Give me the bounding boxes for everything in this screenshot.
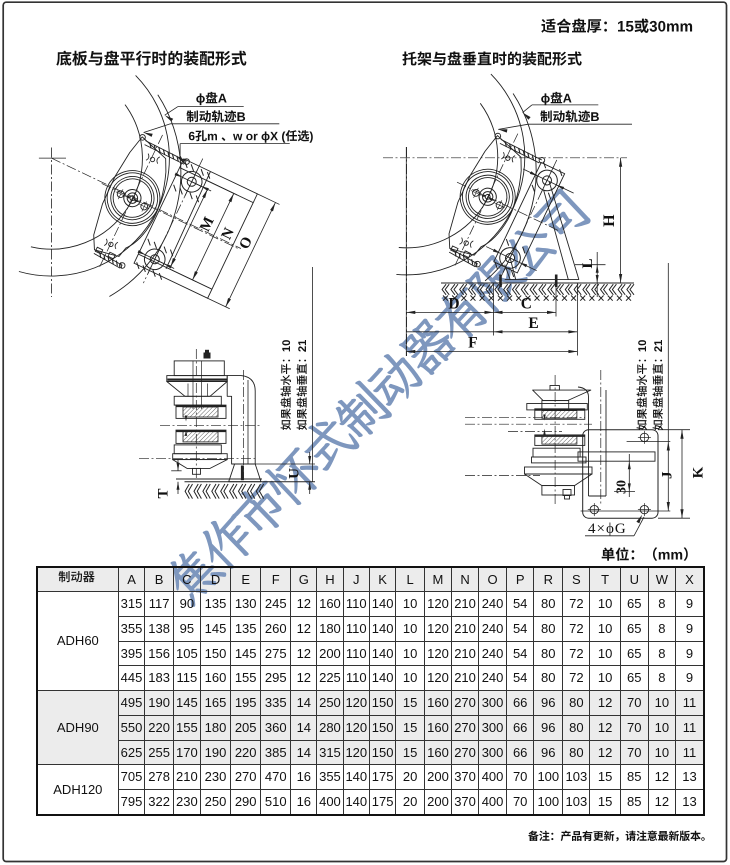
svg-text:D: D: [448, 296, 459, 313]
svg-text:F: F: [468, 335, 477, 352]
svg-text:M: M: [197, 215, 218, 235]
svg-text:C: C: [521, 296, 532, 313]
svg-text:30: 30: [615, 480, 630, 494]
svg-text:L: L: [580, 258, 596, 268]
svg-text:H: H: [601, 214, 618, 227]
svg-text:J: J: [659, 471, 675, 479]
svg-text:T: T: [155, 488, 171, 498]
svg-text:4×ϕG: 4×ϕG: [588, 521, 627, 537]
svg-text:U: U: [287, 468, 303, 479]
svg-text:E: E: [528, 315, 538, 332]
svg-text:K: K: [690, 466, 706, 478]
